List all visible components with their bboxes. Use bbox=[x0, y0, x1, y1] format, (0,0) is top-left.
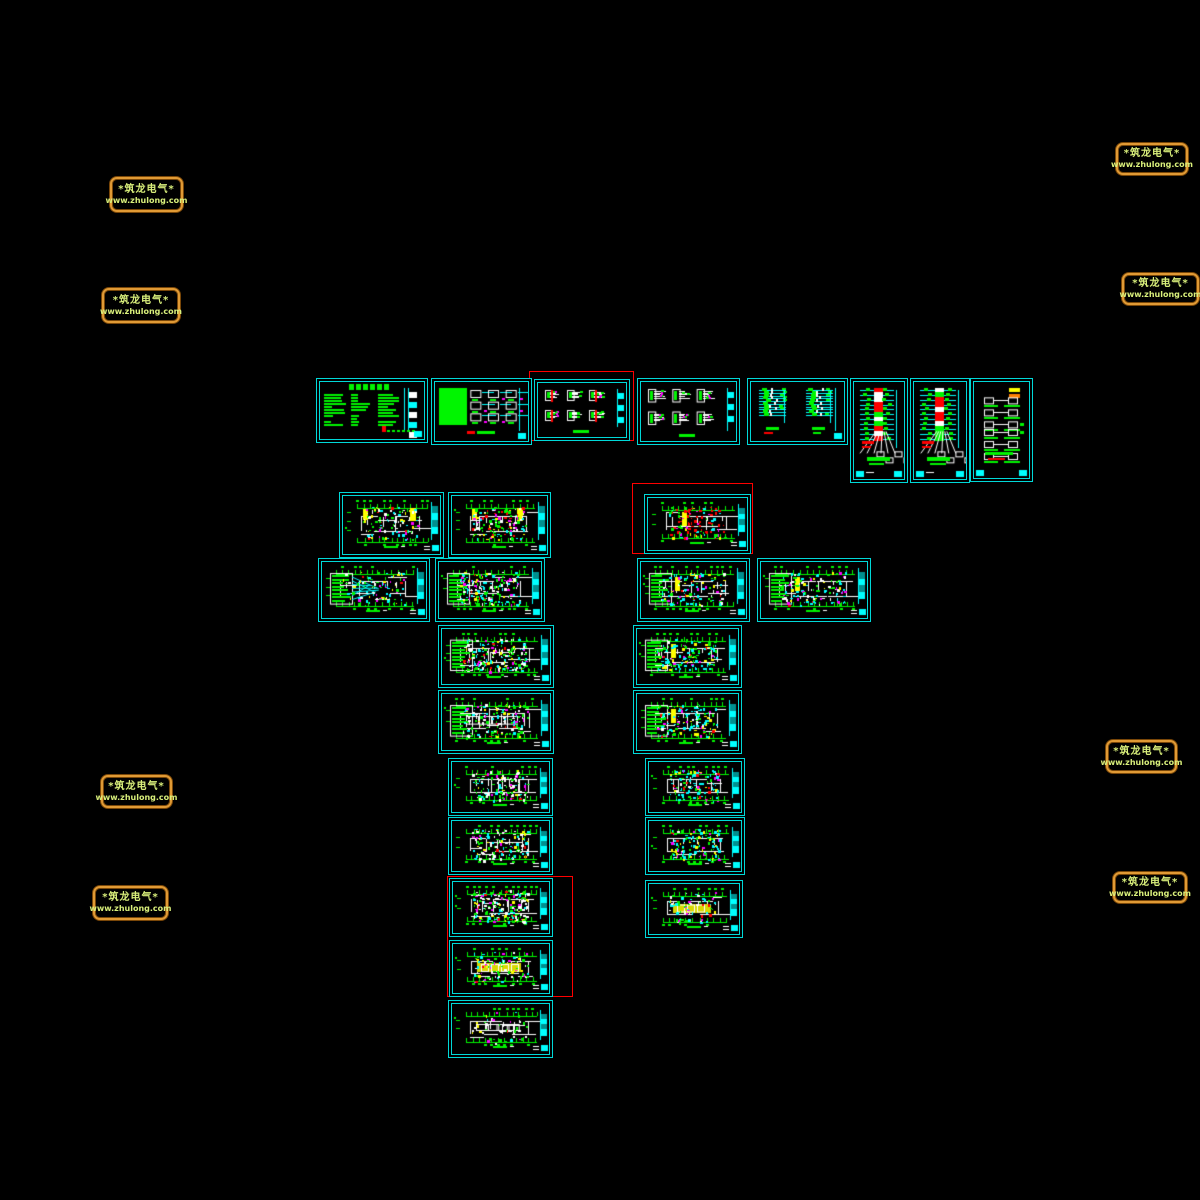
watermark: *筑龙电气* www.zhulong.com bbox=[1113, 872, 1187, 903]
sheet-inner-border bbox=[452, 943, 550, 994]
watermark: *筑龙电气* www.zhulong.com bbox=[1106, 740, 1177, 773]
sheet-content-canvas bbox=[442, 629, 550, 684]
sheet-inner-border bbox=[913, 381, 967, 480]
drawing-sheet-plan-19[interactable] bbox=[448, 1000, 553, 1058]
sheet-inner-border bbox=[853, 381, 905, 480]
sheet-inner-border bbox=[451, 495, 548, 555]
sheet-content-canvas bbox=[648, 498, 747, 550]
sheet-content-canvas bbox=[453, 882, 549, 933]
drawing-sheet-notes[interactable] bbox=[316, 378, 428, 443]
sheet-content-canvas bbox=[761, 562, 867, 618]
sheet-content-canvas bbox=[974, 382, 1029, 478]
watermark: *筑龙电气* www.zhulong.com bbox=[93, 886, 168, 920]
drawing-sheet-feeder[interactable] bbox=[970, 378, 1033, 482]
sheet-content-canvas bbox=[322, 562, 426, 618]
drawing-sheet-legend[interactable] bbox=[431, 378, 532, 445]
watermark: *筑龙电气* www.zhulong.com bbox=[1122, 273, 1199, 305]
drawing-sheet-riser-pair[interactable] bbox=[747, 378, 848, 445]
sheet-inner-border bbox=[636, 693, 739, 751]
watermark-title: *筑龙电气* bbox=[113, 295, 169, 307]
drawing-sheet-dist-2[interactable] bbox=[637, 378, 740, 445]
drawing-sheet-plan-12[interactable] bbox=[448, 758, 553, 816]
watermark-title: *筑龙电气* bbox=[108, 781, 164, 793]
sheet-inner-border bbox=[451, 820, 550, 872]
sheet-content-canvas bbox=[641, 562, 746, 618]
cad-viewport[interactable]: *筑龙电气* www.zhulong.com *筑龙电气* www.zhulon… bbox=[0, 0, 1200, 1200]
watermark-url: www.zhulong.com bbox=[1111, 160, 1193, 170]
sheet-content-canvas bbox=[452, 821, 549, 871]
sheet-inner-border bbox=[537, 382, 627, 438]
watermark-title: *筑龙电气* bbox=[102, 892, 158, 904]
sheet-inner-border bbox=[452, 881, 550, 934]
sheet-content-canvas bbox=[442, 694, 550, 750]
drawing-sheet-plan-08[interactable] bbox=[438, 625, 554, 688]
watermark-title: *筑龙电气* bbox=[1113, 746, 1169, 758]
watermark: *筑龙电气* www.zhulong.com bbox=[102, 288, 180, 323]
watermark-title: *筑龙电气* bbox=[1124, 148, 1180, 160]
drawing-sheet-plan-01[interactable] bbox=[339, 492, 444, 558]
sheet-content-canvas bbox=[649, 821, 741, 871]
sheet-content-canvas bbox=[452, 762, 549, 812]
sheet-inner-border bbox=[438, 561, 542, 619]
sheet-inner-border bbox=[750, 381, 845, 442]
sheet-content-canvas bbox=[751, 382, 844, 441]
drawing-sheet-plan-03[interactable] bbox=[644, 494, 751, 554]
sheet-inner-border bbox=[451, 761, 550, 813]
drawing-sheet-riser-1[interactable] bbox=[850, 378, 908, 483]
sheet-inner-border bbox=[648, 761, 742, 813]
sheet-inner-border bbox=[441, 693, 551, 751]
watermark-title: *筑龙电气* bbox=[1132, 278, 1188, 290]
watermark-url: www.zhulong.com bbox=[100, 307, 182, 317]
watermark-url: www.zhulong.com bbox=[1100, 758, 1182, 768]
sheet-inner-border bbox=[973, 381, 1030, 479]
watermark: *筑龙电气* www.zhulong.com bbox=[101, 775, 172, 808]
drawing-sheet-plan-04[interactable] bbox=[318, 558, 430, 622]
watermark-title: *筑龙电气* bbox=[1122, 877, 1178, 889]
sheet-content-canvas bbox=[637, 694, 738, 750]
drawing-sheet-plan-09[interactable] bbox=[633, 625, 742, 688]
sheet-inner-border bbox=[647, 497, 748, 551]
drawing-sheet-plan-13[interactable] bbox=[645, 758, 745, 816]
sheet-inner-border bbox=[451, 1003, 550, 1055]
watermark-url: www.zhulong.com bbox=[105, 196, 187, 206]
sheet-content-canvas bbox=[452, 496, 547, 554]
sheet-inner-border bbox=[636, 628, 739, 685]
drawing-sheet-plan-05[interactable] bbox=[435, 558, 545, 622]
drawing-sheet-plan-10[interactable] bbox=[438, 690, 554, 754]
sheet-content-canvas bbox=[854, 382, 904, 479]
sheet-content-canvas bbox=[453, 944, 549, 993]
sheet-inner-border bbox=[342, 495, 441, 555]
sheet-inner-border bbox=[319, 381, 425, 440]
drawing-sheet-plan-15[interactable] bbox=[645, 817, 745, 875]
watermark-title: *筑龙电气* bbox=[118, 184, 174, 196]
sheet-content-canvas bbox=[637, 629, 738, 684]
watermark-url: www.zhulong.com bbox=[1109, 889, 1191, 899]
sheet-content-canvas bbox=[649, 884, 739, 934]
sheet-inner-border bbox=[441, 628, 551, 685]
sheet-inner-border bbox=[760, 561, 868, 619]
drawing-sheet-plan-18[interactable] bbox=[449, 940, 553, 997]
sheet-content-canvas bbox=[914, 382, 966, 479]
drawing-sheet-plan-07[interactable] bbox=[757, 558, 871, 622]
drawing-sheet-plan-17[interactable] bbox=[645, 880, 743, 938]
drawing-sheet-plan-06[interactable] bbox=[637, 558, 750, 622]
watermark-url: www.zhulong.com bbox=[95, 793, 177, 803]
sheet-content-canvas bbox=[538, 383, 626, 437]
sheet-inner-border bbox=[434, 381, 529, 442]
sheet-content-canvas bbox=[343, 496, 440, 554]
sheet-content-canvas bbox=[649, 762, 741, 812]
sheet-inner-border bbox=[321, 561, 427, 619]
sheet-content-canvas bbox=[435, 382, 528, 441]
sheet-content-canvas bbox=[641, 382, 736, 441]
watermark: *筑龙电气* www.zhulong.com bbox=[110, 177, 183, 212]
sheet-inner-border bbox=[640, 561, 747, 619]
sheet-content-canvas bbox=[439, 562, 541, 618]
drawing-sheet-plan-11[interactable] bbox=[633, 690, 742, 754]
drawing-sheet-plan-02[interactable] bbox=[448, 492, 551, 558]
sheet-content-canvas bbox=[452, 1004, 549, 1054]
watermark-url: www.zhulong.com bbox=[89, 904, 171, 914]
drawing-sheet-dist-1[interactable] bbox=[534, 379, 630, 441]
drawing-sheet-plan-16[interactable] bbox=[449, 878, 553, 937]
sheet-inner-border bbox=[648, 883, 740, 935]
sheet-content-canvas bbox=[320, 382, 424, 439]
drawing-sheet-plan-14[interactable] bbox=[448, 817, 553, 875]
watermark-url: www.zhulong.com bbox=[1119, 290, 1200, 300]
drawing-sheet-riser-2[interactable] bbox=[910, 378, 970, 483]
watermark: *筑龙电气* www.zhulong.com bbox=[1116, 143, 1188, 175]
sheet-inner-border bbox=[640, 381, 737, 442]
sheet-inner-border bbox=[648, 820, 742, 872]
